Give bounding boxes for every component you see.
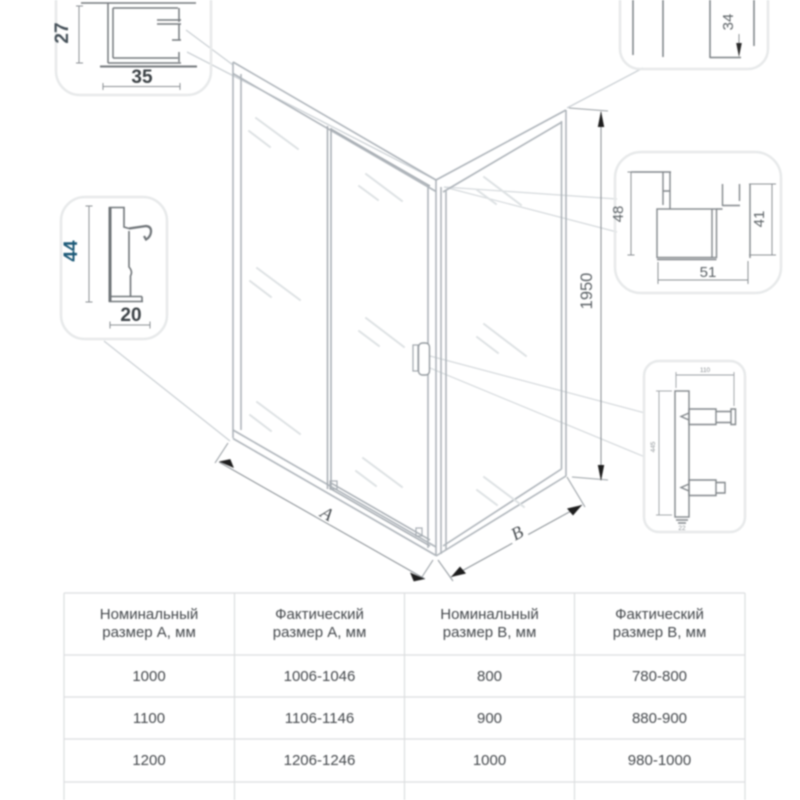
svg-text:35: 35	[131, 67, 153, 88]
svg-text:размер А, мм: размер А, мм	[273, 624, 367, 641]
svg-text:44: 44	[61, 240, 82, 262]
svg-text:1200: 1200	[132, 752, 165, 769]
svg-text:27: 27	[52, 22, 73, 43]
svg-text:1000: 1000	[473, 752, 506, 769]
svg-text:34: 34	[720, 14, 737, 31]
svg-text:51: 51	[700, 264, 717, 281]
svg-text:880-900: 880-900	[632, 710, 687, 727]
svg-text:445: 445	[650, 441, 657, 452]
svg-text:Фактический: Фактический	[275, 606, 364, 623]
svg-text:1006-1046: 1006-1046	[284, 668, 356, 685]
svg-text:1000: 1000	[132, 668, 165, 685]
svg-text:1950: 1950	[578, 273, 596, 310]
svg-text:110: 110	[700, 367, 711, 374]
svg-text:800: 800	[477, 668, 502, 685]
svg-text:1100: 1100	[133, 710, 165, 727]
svg-text:размер В, мм: размер В, мм	[613, 624, 707, 641]
svg-text:Фактический: Фактический	[615, 606, 704, 623]
svg-text:20: 20	[120, 305, 141, 326]
svg-text:900: 900	[477, 710, 502, 727]
svg-text:1206-1246: 1206-1246	[284, 752, 356, 769]
svg-text:22: 22	[678, 525, 686, 532]
svg-text:Номинальный: Номинальный	[440, 606, 539, 623]
svg-text:размер В, мм: размер В, мм	[443, 624, 537, 641]
svg-text:980-1000: 980-1000	[628, 752, 691, 769]
svg-text:41: 41	[751, 211, 768, 228]
svg-text:48: 48	[610, 206, 627, 223]
svg-text:780-800: 780-800	[632, 668, 687, 685]
svg-text:размер А, мм: размер А, мм	[102, 624, 196, 641]
svg-text:1106-1146: 1106-1146	[285, 710, 355, 727]
svg-text:Номинальный: Номинальный	[100, 606, 199, 623]
